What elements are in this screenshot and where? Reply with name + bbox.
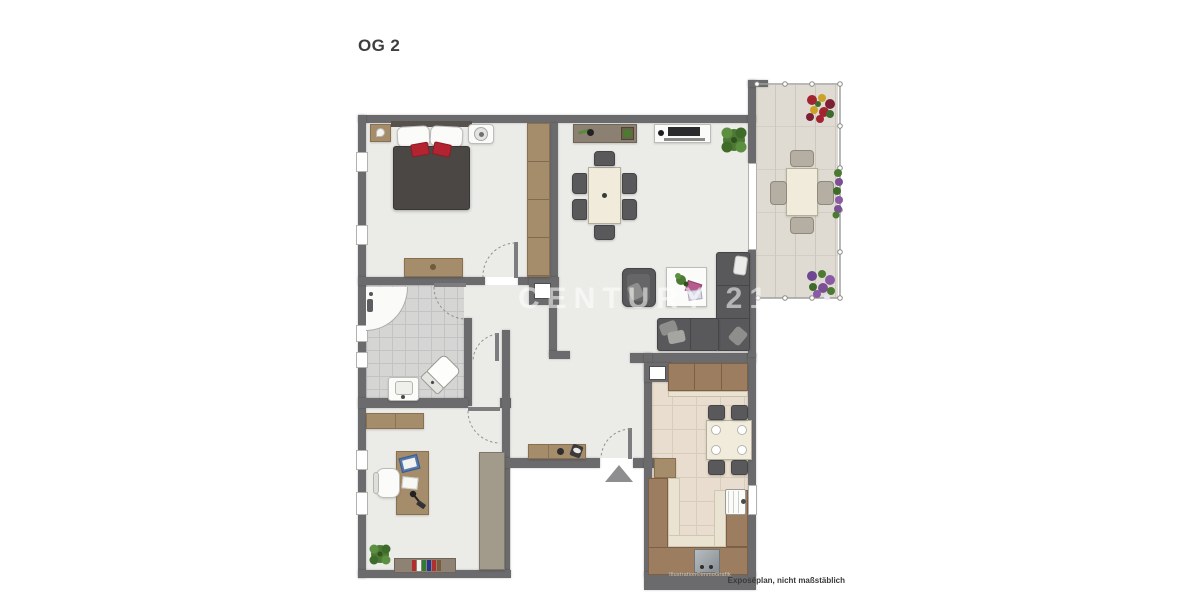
study-sideboard-seam: [395, 413, 396, 429]
shower-head-dot: [369, 292, 373, 296]
book-1: [412, 560, 416, 571]
study-window-2: [356, 492, 368, 515]
sink-stripe-1: [728, 491, 729, 513]
wall-kitchen-right: [748, 353, 756, 577]
balcony-chair-left: [770, 181, 787, 205]
sink-stripe-2: [733, 491, 734, 513]
plate-3: [711, 445, 721, 455]
book-4: [427, 560, 431, 571]
watermark: CENTURY 21: [518, 282, 773, 316]
study-shelf: [479, 452, 505, 570]
hallway-sideboard-knob: [557, 448, 564, 455]
hallway-sideboard-seam: [548, 444, 549, 459]
sink-tap-dot: [741, 499, 746, 504]
kitchen-chair-3: [708, 460, 725, 475]
balcony-door-window: [748, 163, 757, 250]
shower-fixture-icon: [367, 299, 373, 312]
dining-chair-bottom: [594, 225, 615, 240]
floor-plan-canvas: OG 2 CENTURY 21 Illustration©immoGrafik …: [0, 0, 1200, 600]
wall-bathroom-right: [464, 318, 472, 406]
nightstand-lamp-dot: [479, 132, 484, 137]
kitchen-chair-2: [731, 405, 748, 420]
dining-table-dot: [602, 193, 607, 198]
wall-balcony-stub: [748, 80, 768, 87]
stove-knob-1: [700, 565, 704, 569]
wall-right-upper: [748, 80, 756, 163]
sofa-seam-3: [690, 319, 691, 350]
kitchen-chair-1: [708, 405, 725, 420]
dining-chair-left-1: [572, 173, 587, 194]
wall-bedroom-living-divider: [550, 123, 558, 277]
kitchen-window: [748, 485, 757, 515]
bedroom-wardrobe: [527, 123, 550, 277]
sideboard-plant: [623, 129, 632, 138]
kitchen-side-unit: [654, 458, 676, 478]
book-3: [422, 560, 426, 571]
tv-screen: [668, 127, 700, 136]
kitchen-cabinet-lip: [668, 391, 748, 397]
book-2: [417, 560, 421, 571]
bedroom-window-2: [356, 225, 368, 245]
desk-paper: [401, 476, 418, 490]
sink-stripe-3: [738, 491, 739, 513]
dining-chair-top: [594, 151, 615, 166]
kitchen-chair-4: [731, 460, 748, 475]
balcony-chair-top: [790, 150, 814, 167]
bedroom-window-1: [356, 152, 368, 172]
sideboard-bowl: [587, 129, 594, 136]
kitchen-cabinet-seam-1: [694, 363, 695, 391]
tv-speaker-dot: [658, 130, 664, 136]
dining-chair-right-1: [622, 173, 637, 194]
balcony-chair-bottom: [790, 217, 814, 234]
wall-hall-living-stub: [549, 351, 570, 359]
balcony-table: [786, 168, 818, 216]
book-5: [432, 560, 436, 571]
tv-soundbar: [664, 138, 705, 141]
sofa-pillow-white: [733, 255, 749, 276]
dining-chair-right-2: [622, 199, 637, 220]
kitchen-entry-niche: [649, 366, 666, 380]
page-title: OG 2: [358, 36, 400, 56]
sofa-seam-2: [717, 318, 749, 319]
office-chair-back: [373, 472, 379, 494]
stove-knob-2: [709, 565, 713, 569]
bedroom-door-leaf: [514, 242, 518, 278]
bedroom-dresser-knob: [430, 264, 436, 270]
disclaimer-text: Exposéplan, nicht maßstäblich: [640, 576, 845, 585]
study-window-1: [356, 450, 368, 470]
kitchen-stove: [694, 549, 720, 573]
nook-door-leaf: [495, 333, 499, 361]
wall-hallway-bottom-left: [502, 458, 600, 468]
bathroom-door-leaf: [434, 283, 466, 287]
plate-4: [737, 445, 747, 455]
bathroom-window-2: [356, 352, 368, 368]
plate-2: [737, 425, 747, 435]
kitchen-cabinet-seam-2: [721, 363, 722, 391]
office-chair: [376, 468, 400, 498]
washbasin-bowl: [395, 381, 413, 395]
dining-chair-left-2: [572, 199, 587, 220]
kitchen-wall-cabinets: [668, 363, 748, 391]
book-6: [437, 560, 441, 571]
balcony-chair-right: [817, 181, 834, 205]
bed-duvet: [393, 146, 470, 210]
study-door-leaf: [468, 407, 500, 411]
entry-door-leaf: [628, 428, 632, 459]
nightstand-left-item: [376, 128, 385, 137]
entry-arrow-icon: [605, 465, 633, 482]
plate-1: [711, 425, 721, 435]
washbasin-tap-dot: [401, 395, 405, 399]
